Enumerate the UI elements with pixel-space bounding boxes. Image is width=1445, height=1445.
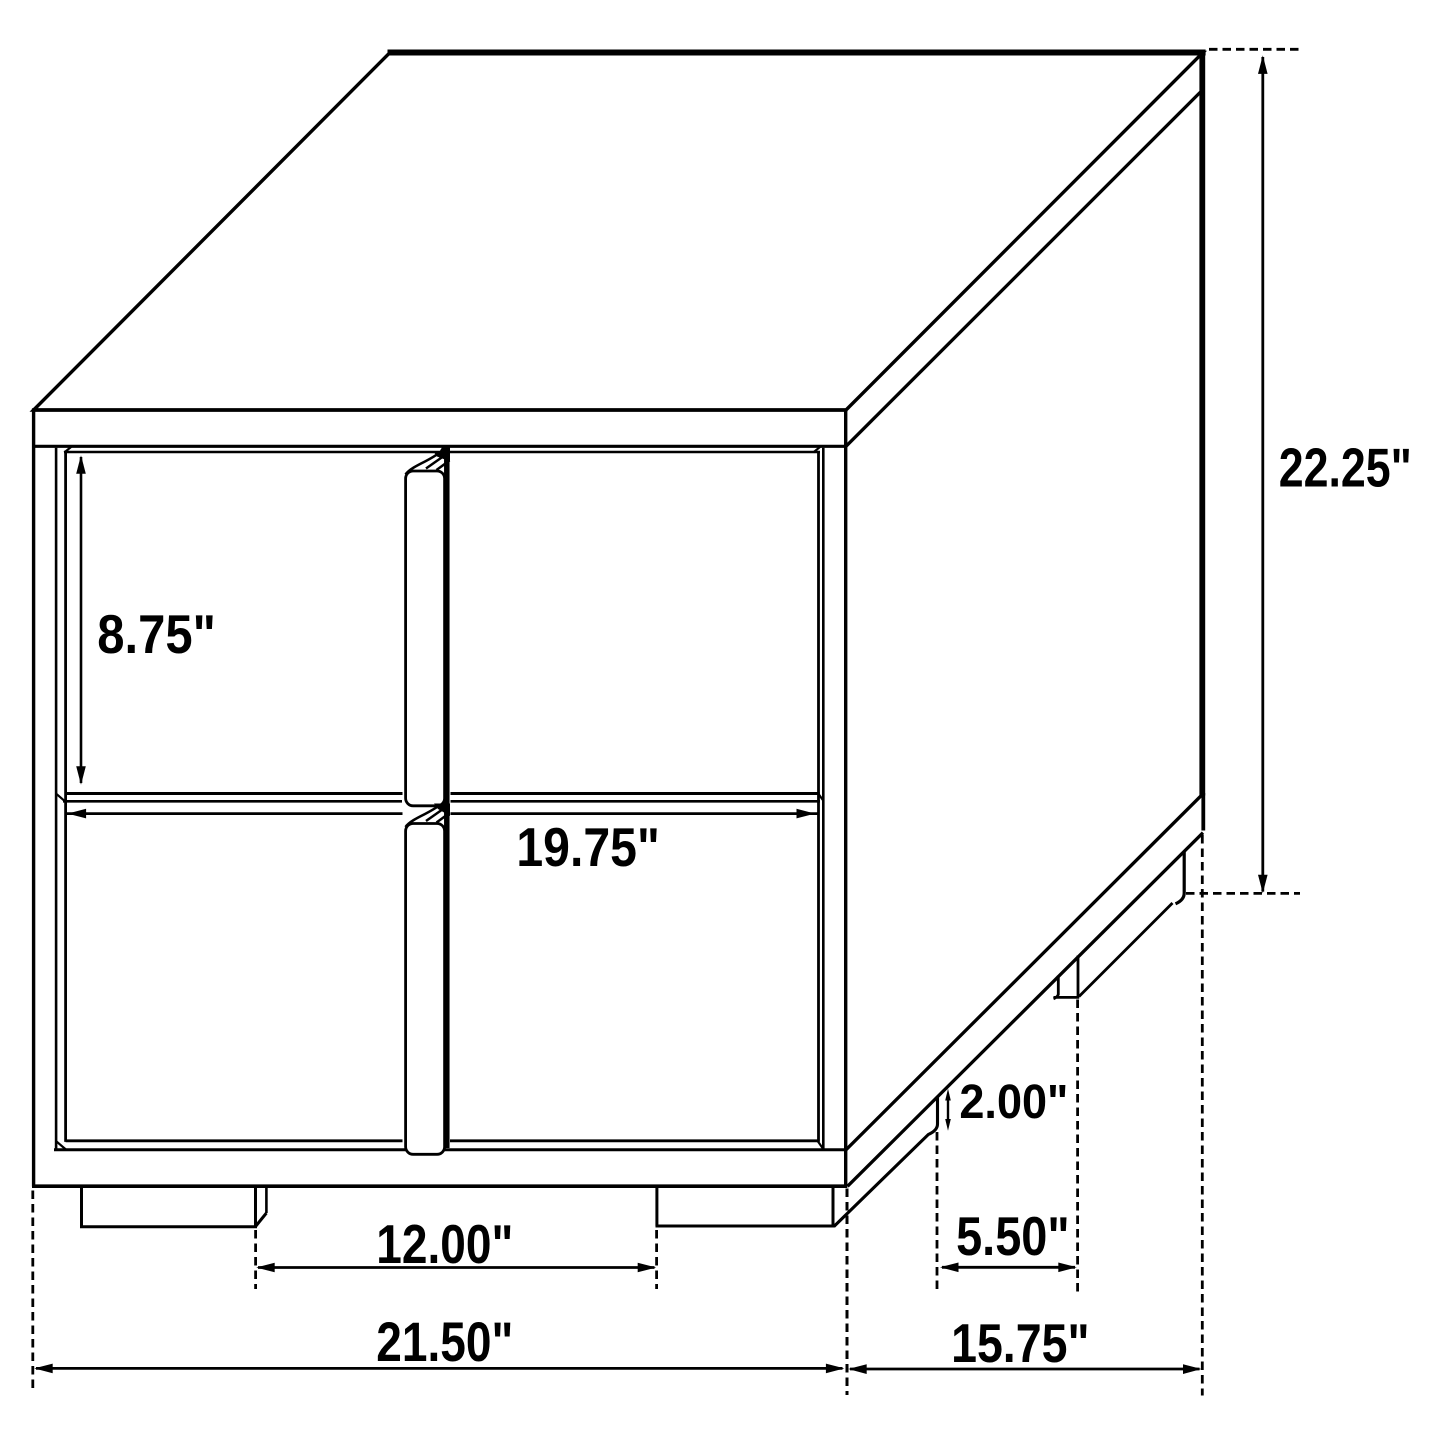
svg-text:15.75": 15.75" — [951, 1313, 1089, 1374]
svg-text:2.00": 2.00" — [959, 1076, 1068, 1129]
svg-text:21.50": 21.50" — [376, 1310, 513, 1373]
svg-text:8.75": 8.75" — [97, 604, 216, 665]
svg-text:12.00": 12.00" — [376, 1214, 513, 1275]
svg-text:5.50": 5.50" — [956, 1206, 1070, 1267]
svg-text:22.25": 22.25" — [1279, 438, 1412, 499]
svg-text:19.75": 19.75" — [516, 817, 659, 878]
